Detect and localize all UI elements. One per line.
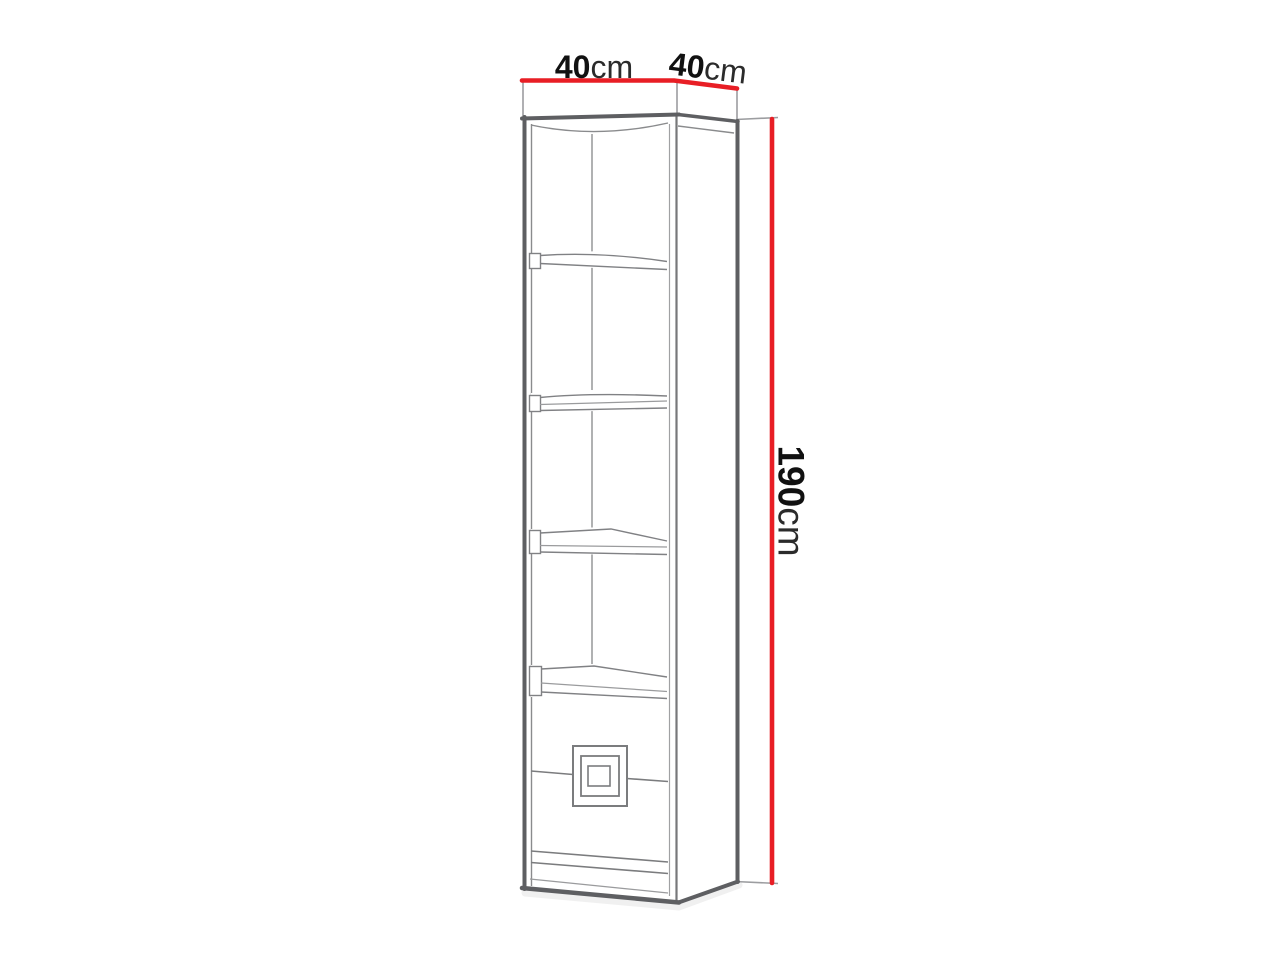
width-dimension-label: 40cm [555,51,633,83]
diagram-canvas: 40cm 40cm 190cm [0,0,1279,959]
height-unit: cm [771,507,812,556]
height-value: 190 [771,445,812,507]
bookcase-diagram [0,0,1279,959]
height-dimension-label: 190cm [773,445,810,556]
depth-dimension-label: 40cm [667,47,749,88]
width-unit: cm [590,49,633,85]
depth-unit: cm [702,50,749,91]
width-value: 40 [555,49,591,85]
cabinet-body [523,114,738,902]
depth-value: 40 [667,45,707,85]
